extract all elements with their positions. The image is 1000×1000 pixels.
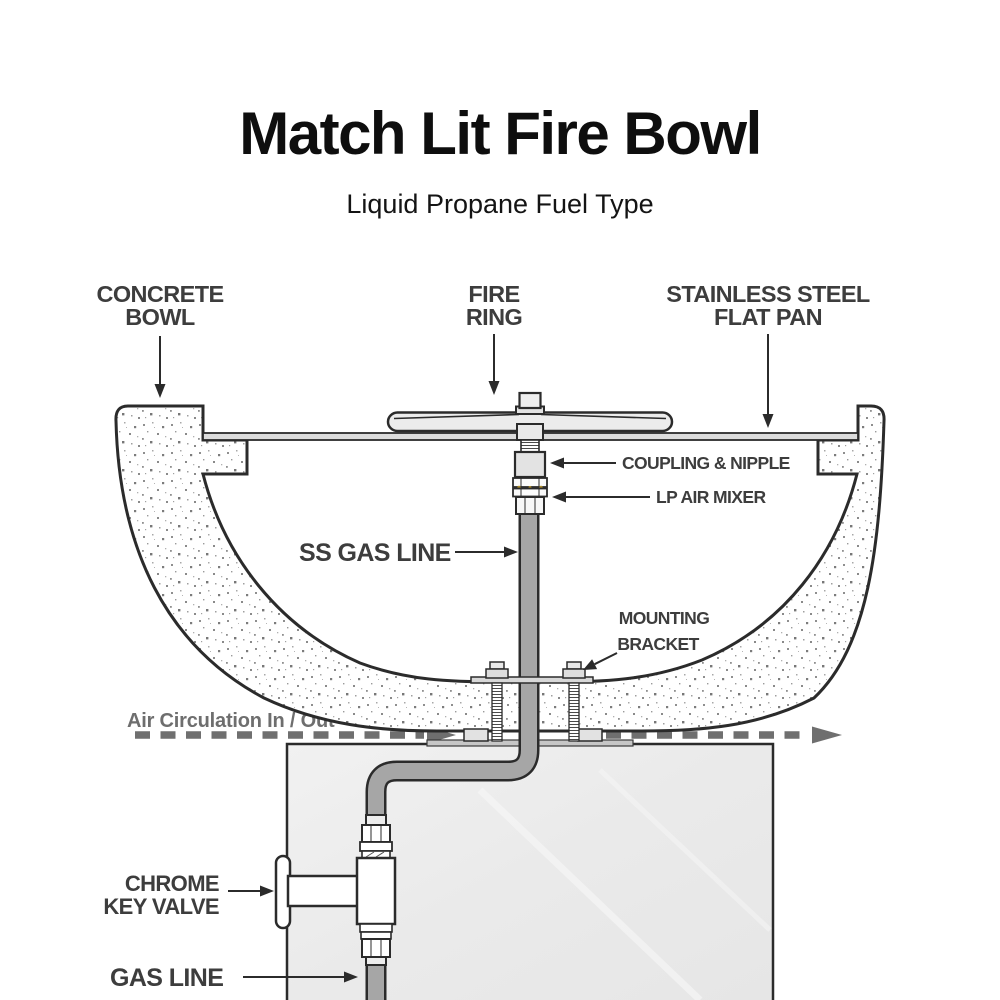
mounting-bracket-callout: MOUNTING BRACKET: [583, 608, 709, 670]
valve-stem-pipe: [288, 876, 358, 906]
flat-pan-callout: STAINLESS STEEL FLAT PAN: [666, 281, 870, 428]
coupling-nipple-label: COUPLING & NIPPLE: [622, 453, 790, 473]
fire-ring-callout: FIRE RING: [466, 281, 522, 395]
lp-air-mixer-arrow-icon: [552, 492, 566, 503]
coupling-nipple-drawing: [515, 424, 545, 477]
chrome-key-valve-label-line2: KEY VALVE: [103, 894, 219, 919]
concrete-bowl-callout: CONCRETE BOWL: [96, 281, 223, 398]
concrete-bowl-label-line2: BOWL: [125, 304, 195, 330]
concrete-bowl-arrow-icon: [155, 384, 166, 398]
flat-pan-arrow-icon: [763, 414, 774, 428]
mounting-bracket-label-line1: MOUNTING: [619, 608, 709, 628]
chrome-key-valve-arrow-icon: [260, 886, 274, 897]
ss-gas-line-arrow-icon: [504, 547, 518, 558]
chrome-key-valve-label-line1: CHROME: [125, 871, 219, 896]
lp-air-mixer-label: LP AIR MIXER: [656, 487, 766, 507]
lp-air-mixer-drawing: [513, 478, 547, 514]
valve-body: [357, 858, 395, 924]
air-flow-arrow-right-icon: [812, 727, 842, 744]
coupling-nipple-arrow-icon: [550, 458, 564, 469]
fire-bowl-diagram: Air Circulation In / Out: [0, 0, 1000, 1000]
ss-gas-line-label: SS GAS LINE: [299, 539, 451, 567]
fire-ring-label-line2: RING: [466, 304, 522, 330]
fire-ring-arrow-icon: [489, 381, 500, 395]
flat-pan-label-line2: FLAT PAN: [714, 304, 822, 330]
page: Match Lit Fire Bowl Liquid Propane Fuel …: [0, 0, 1000, 1000]
chrome-key-valve-callout: CHROME KEY VALVE: [103, 871, 274, 919]
mounting-bracket-label-line2: BRACKET: [617, 634, 699, 654]
gas-line-label: GAS LINE: [110, 964, 223, 992]
lp-air-mixer-callout: LP AIR MIXER: [552, 487, 766, 507]
coupling-nipple-callout: COUPLING & NIPPLE: [550, 453, 790, 473]
ss-gas-line-callout: SS GAS LINE: [299, 539, 518, 567]
